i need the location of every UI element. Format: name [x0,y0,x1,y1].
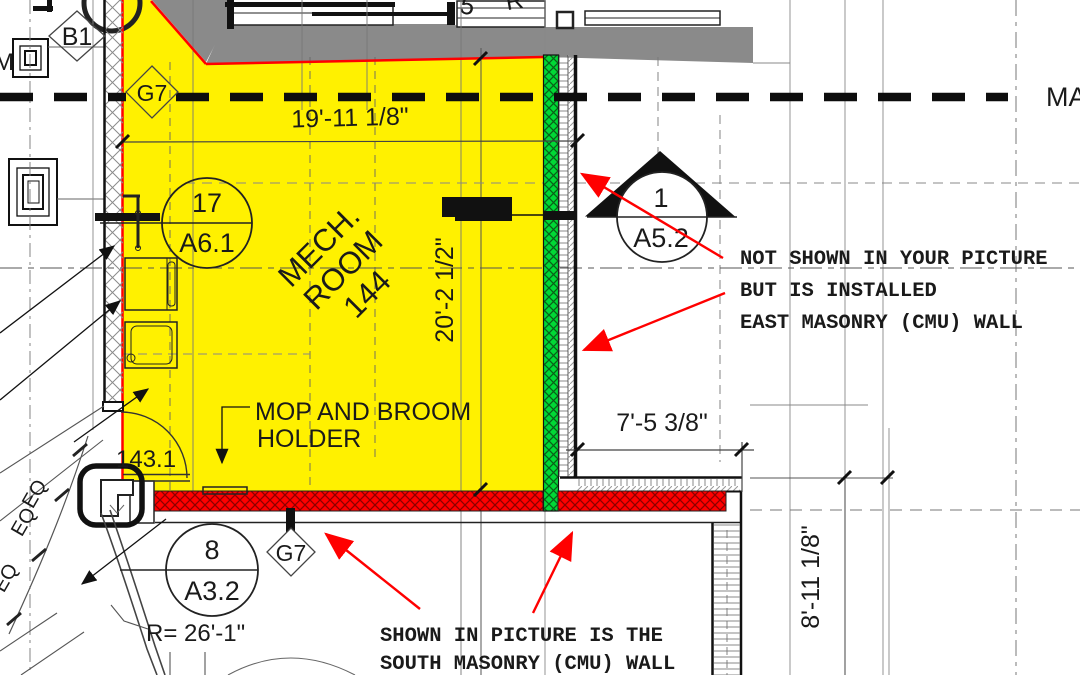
beam-symbol [442,197,512,217]
match-line-label: MA [1046,82,1080,112]
floor-plan-screenshot: M 5 R [0,0,1080,675]
grid-bubble-label: B1 [62,23,93,51]
annotation-line: SOUTH MASONRY (CMU) WALL [380,653,675,675]
callout-sheet: A3.2 [184,576,240,606]
grid-bubble-label: G7 [276,540,307,566]
dim-right-vertical: 8'-11 1/8" [797,525,825,629]
mop-label-line2: HOLDER [257,425,361,453]
annotation-line: NOT SHOWN IN YOUR PICTURE [740,248,1048,271]
mop-label-line1: MOP AND BROOM [255,398,471,426]
callout-number: 17 [192,188,222,218]
east-wall-green-cmu [544,55,576,511]
floor-plan-drawing: M 5 R [0,0,1080,675]
callout-sheet: A5.2 [633,223,689,253]
grid-bubble-label: G7 [137,80,168,106]
callout-number: 1 [653,183,668,213]
dim-top: 19'-11 1/8" [291,102,409,133]
east-corner-wall [560,478,742,492]
annotation-line: SHOWN IN PICTURE IS THE [380,625,663,648]
radius-label: R= 26'-1" [146,620,245,647]
annotation-line: BUT IS INSTALLED [740,280,937,303]
annotation-line: EAST MASONRY (CMU) WALL [740,312,1023,335]
dim-room-vertical: 20'-2 1/2" [431,237,459,342]
door-number-label: 143.1 [116,446,176,473]
west-wall [103,0,123,411]
dim-east-offset: 7'-5 3/8" [616,409,707,437]
callout-number: 8 [204,535,219,565]
callout-sheet: A6.1 [179,228,235,258]
left-cut-letter: M [0,49,14,76]
